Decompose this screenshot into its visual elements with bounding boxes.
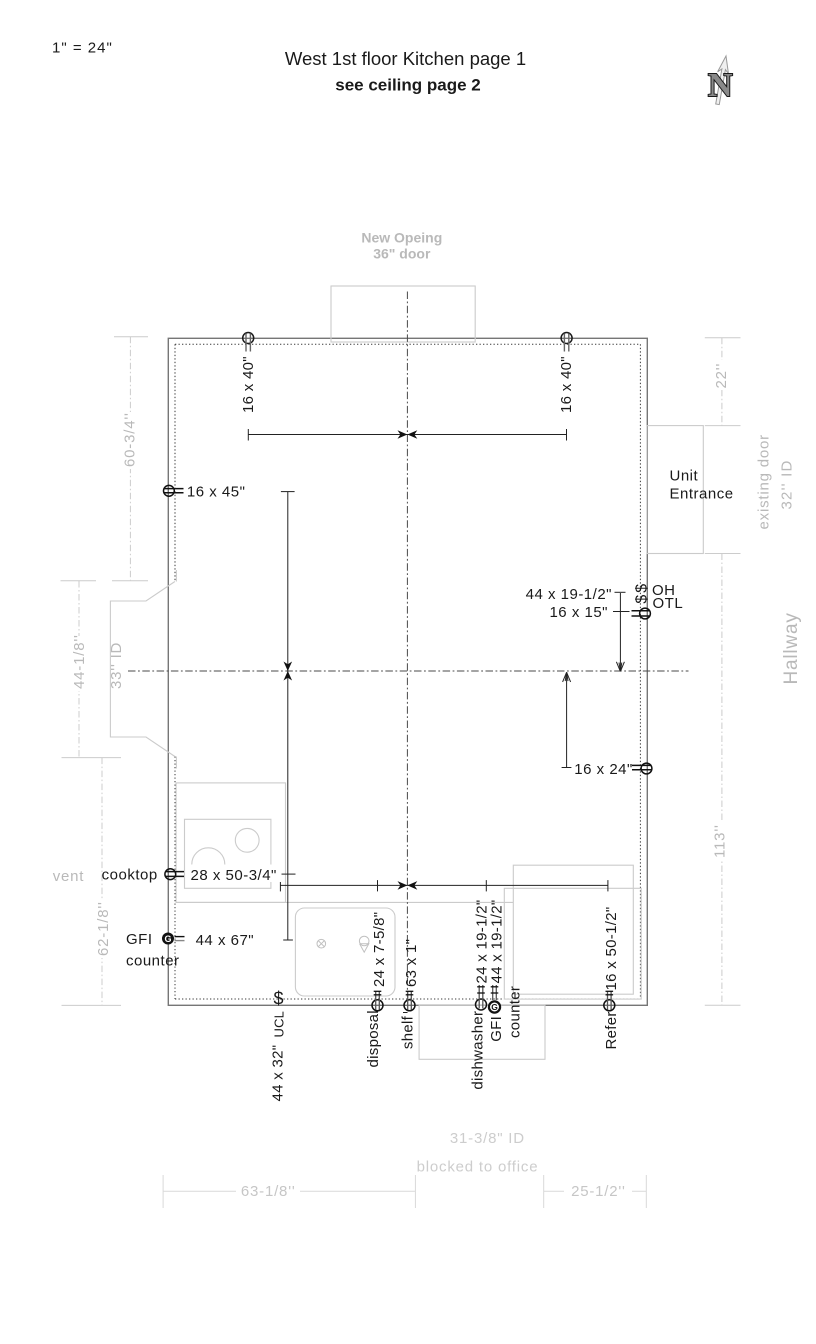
svg-text:16 x 45": 16 x 45": [187, 484, 246, 501]
svg-text:G: G: [164, 934, 171, 944]
svg-text:Refer: Refer: [603, 1011, 620, 1049]
svg-text:Unit: Unit: [670, 468, 699, 485]
svg-text:vent: vent: [53, 868, 85, 885]
svg-text:31-3/8" ID: 31-3/8" ID: [450, 1130, 525, 1147]
svg-text:16 x 40": 16 x 40": [240, 356, 257, 413]
svg-text:32'' ID: 32'' ID: [779, 460, 796, 510]
svg-text:counter: counter: [126, 953, 180, 970]
svg-text:16 x 40": 16 x 40": [558, 356, 575, 413]
svg-text:44 x 19-1/2": 44 x 19-1/2": [526, 586, 612, 603]
svg-text:24 x 7-5/8": 24 x 7-5/8": [371, 912, 388, 987]
svg-text:existing door: existing door: [756, 434, 773, 529]
svg-text:disposal: disposal: [365, 1010, 382, 1067]
svg-text:63-1/8'': 63-1/8'': [241, 1183, 296, 1200]
svg-text:$: $: [274, 989, 284, 1009]
svg-text:dishwasher: dishwasher: [470, 1011, 487, 1090]
svg-text:shelf: shelf: [400, 1015, 417, 1049]
svg-text:16 x 15": 16 x 15": [549, 604, 608, 621]
svg-text:60-3/4'': 60-3/4'': [122, 412, 139, 467]
svg-text:blocked to office: blocked to office: [417, 1159, 539, 1176]
svg-text:33'' ID: 33'' ID: [108, 642, 125, 689]
svg-text:28 x 50-3/4": 28 x 50-3/4": [191, 867, 277, 884]
svg-text:25-1/2'': 25-1/2'': [571, 1183, 626, 1200]
svg-text:OTL: OTL: [653, 595, 684, 612]
svg-text:44-1/8'': 44-1/8'': [71, 634, 88, 689]
svg-text:GFI: GFI: [126, 931, 153, 948]
svg-text:16 x 50-1/2": 16 x 50-1/2": [603, 907, 620, 991]
svg-text:UCL: UCL: [272, 1011, 287, 1038]
svg-text:113'': 113'': [712, 824, 729, 858]
svg-text:$: $: [634, 594, 651, 603]
svg-text:G: G: [491, 1002, 498, 1012]
svg-text:New Opeing: New Opeing: [361, 230, 442, 246]
svg-text:22'': 22'': [713, 363, 730, 389]
svg-text:counter: counter: [507, 986, 524, 1038]
svg-text:1" = 24": 1" = 24": [52, 40, 113, 57]
svg-text:N: N: [708, 67, 733, 104]
svg-text:Hallway: Hallway: [781, 612, 802, 684]
svg-text:West 1st floor Kitchen page 1: West 1st floor Kitchen page 1: [285, 48, 526, 69]
svg-text:44 x 67": 44 x 67": [196, 932, 255, 949]
svg-text:16 x 24": 16 x 24": [574, 761, 633, 778]
svg-text:44 x 32": 44 x 32": [270, 1045, 287, 1102]
svg-text:63 x 1": 63 x 1": [403, 939, 420, 987]
svg-text:Entrance: Entrance: [670, 486, 734, 503]
svg-text:36" door: 36" door: [373, 246, 431, 262]
svg-text:cooktop: cooktop: [102, 867, 158, 884]
svg-text:62-1/8'': 62-1/8'': [95, 901, 112, 956]
svg-text:see ceiling page 2: see ceiling page 2: [335, 76, 481, 95]
svg-text:44 x 19-1/2": 44 x 19-1/2": [489, 900, 506, 984]
svg-text:$: $: [634, 584, 651, 593]
svg-text:GFI: GFI: [488, 1016, 505, 1042]
